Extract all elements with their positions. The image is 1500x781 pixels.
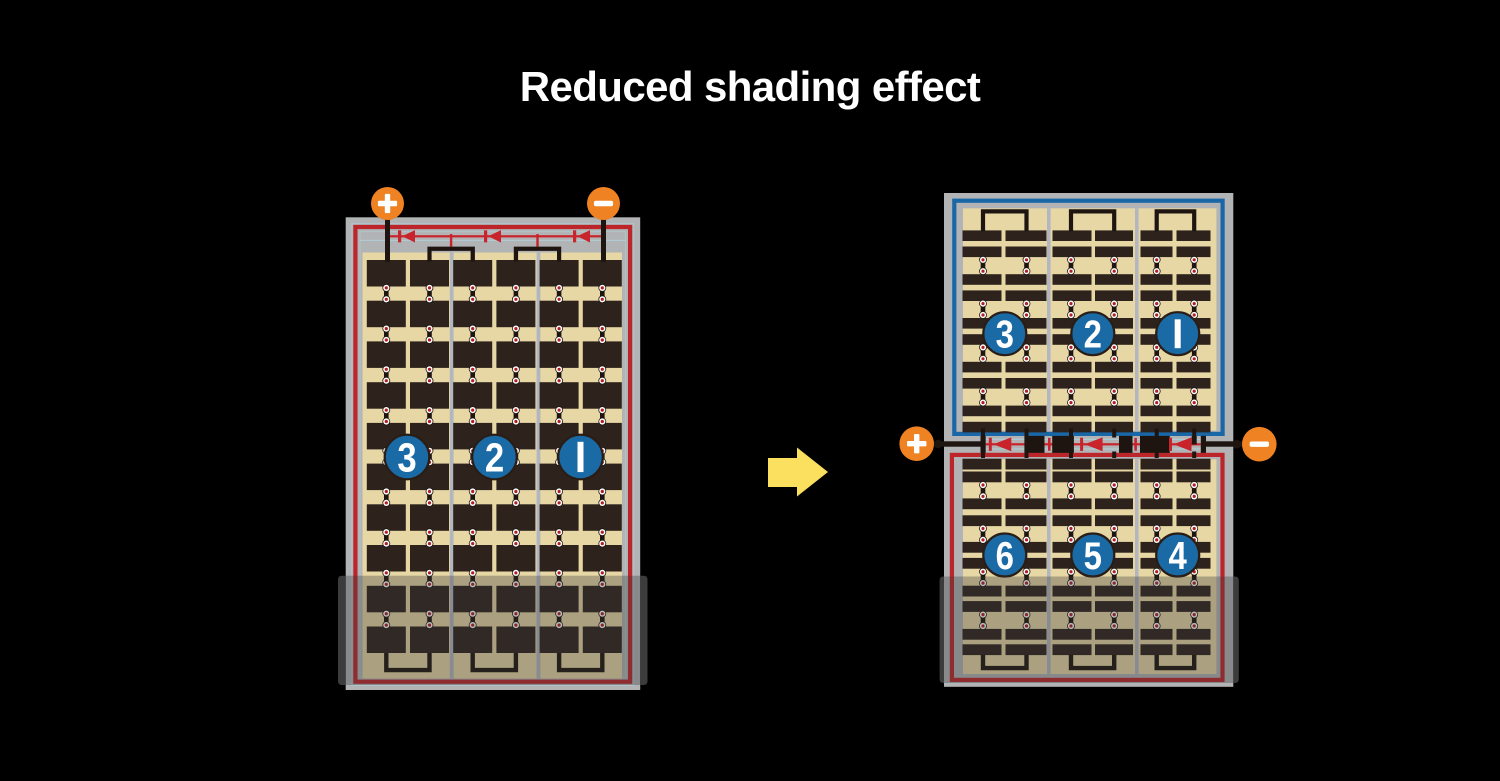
svg-text:3: 3 xyxy=(397,435,416,481)
svg-text:2: 2 xyxy=(1084,314,1102,357)
svg-text:5: 5 xyxy=(1084,535,1102,578)
svg-text:2: 2 xyxy=(485,435,504,481)
svg-text:6: 6 xyxy=(996,535,1014,578)
svg-text:3: 3 xyxy=(996,314,1014,357)
svg-text:Reduced shading effect: Reduced shading effect xyxy=(520,63,981,110)
svg-text:4: 4 xyxy=(1169,535,1188,578)
